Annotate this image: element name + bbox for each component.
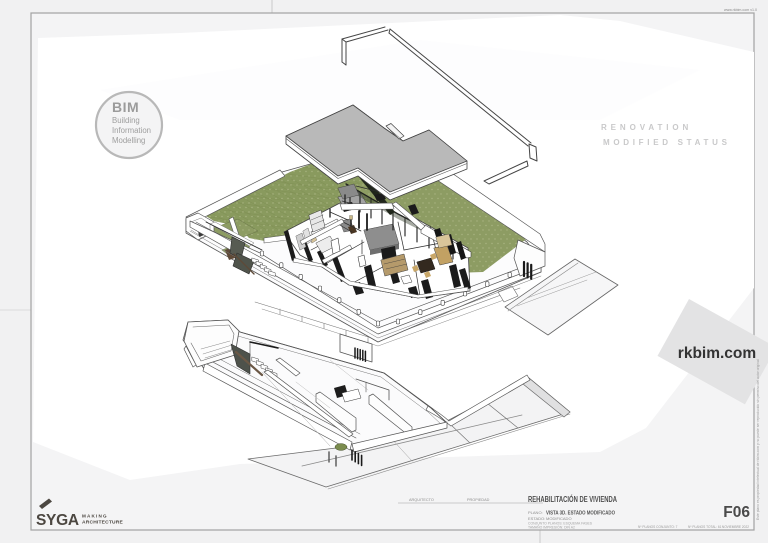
- svg-text:ARQUITECTO: ARQUITECTO: [409, 498, 434, 502]
- svg-text:PROPIEDAD: PROPIEDAD: [467, 498, 490, 502]
- svg-text:REHABILITACIÓN DE VIVIENDA: REHABILITACIÓN DE VIVIENDA: [528, 495, 617, 504]
- svg-text:Modelling: Modelling: [112, 136, 145, 145]
- svg-text:rkbim.com: rkbim.com: [678, 345, 756, 362]
- svg-text:BIM: BIM: [112, 99, 139, 115]
- svg-text:F06: F06: [723, 504, 750, 521]
- svg-text:MODIFICADO: MODIFICADO: [546, 516, 572, 521]
- svg-text:NOVIEMBRE 2022: NOVIEMBRE 2022: [722, 525, 749, 529]
- svg-text:Nº PLANOS CONJUNTO: 7: Nº PLANOS CONJUNTO: 7: [638, 525, 678, 529]
- svg-text:ESTADO:: ESTADO:: [528, 516, 545, 521]
- svg-text:Building: Building: [112, 116, 140, 125]
- svg-text:MODIFIED STATUS: MODIFIED STATUS: [603, 138, 731, 147]
- svg-text:Information: Information: [112, 126, 151, 135]
- svg-text:Nº PLANOS TOTAL: 61: Nº PLANOS TOTAL: 61: [688, 525, 722, 529]
- svg-text:www.rkbim.com v1.0: www.rkbim.com v1.0: [724, 8, 757, 12]
- svg-text:PLANO:: PLANO:: [528, 510, 543, 515]
- svg-text:Este plano es propiedad intele: Este plano es propiedad intelectual de r…: [756, 359, 760, 520]
- svg-text:ARCHITECTURE: ARCHITECTURE: [82, 520, 124, 526]
- svg-text:SYGA: SYGA: [36, 512, 79, 529]
- svg-text:RENOVATION: RENOVATION: [601, 123, 692, 132]
- svg-text:MAKING: MAKING: [82, 514, 108, 519]
- svg-text:TAMAÑO IMPRESIÓN: DIN A2: TAMAÑO IMPRESIÓN: DIN A2: [528, 525, 575, 530]
